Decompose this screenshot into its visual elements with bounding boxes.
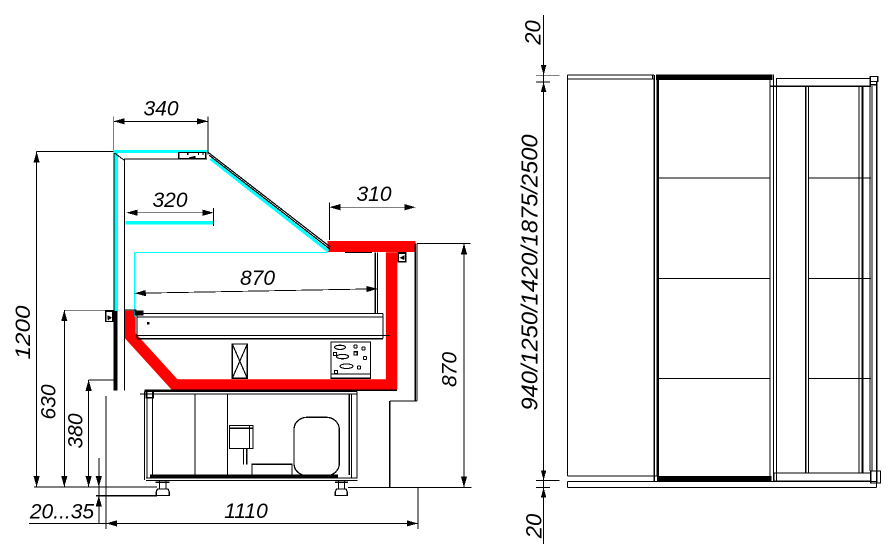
- svg-text:310: 310: [356, 183, 391, 206]
- svg-text:20: 20: [521, 20, 546, 46]
- svg-text:20...35: 20...35: [29, 501, 95, 524]
- svg-text:870: 870: [438, 352, 461, 387]
- svg-text:1200: 1200: [12, 305, 35, 359]
- svg-text:940/1250/1420/1875/2500: 940/1250/1420/1875/2500: [517, 134, 543, 410]
- svg-text:380: 380: [65, 413, 88, 448]
- svg-text:630: 630: [38, 384, 61, 419]
- svg-text:1110: 1110: [224, 500, 268, 523]
- svg-text:20: 20: [522, 513, 547, 539]
- svg-text:340: 340: [143, 98, 178, 121]
- svg-text:320: 320: [152, 189, 187, 212]
- svg-text:870: 870: [240, 267, 275, 290]
